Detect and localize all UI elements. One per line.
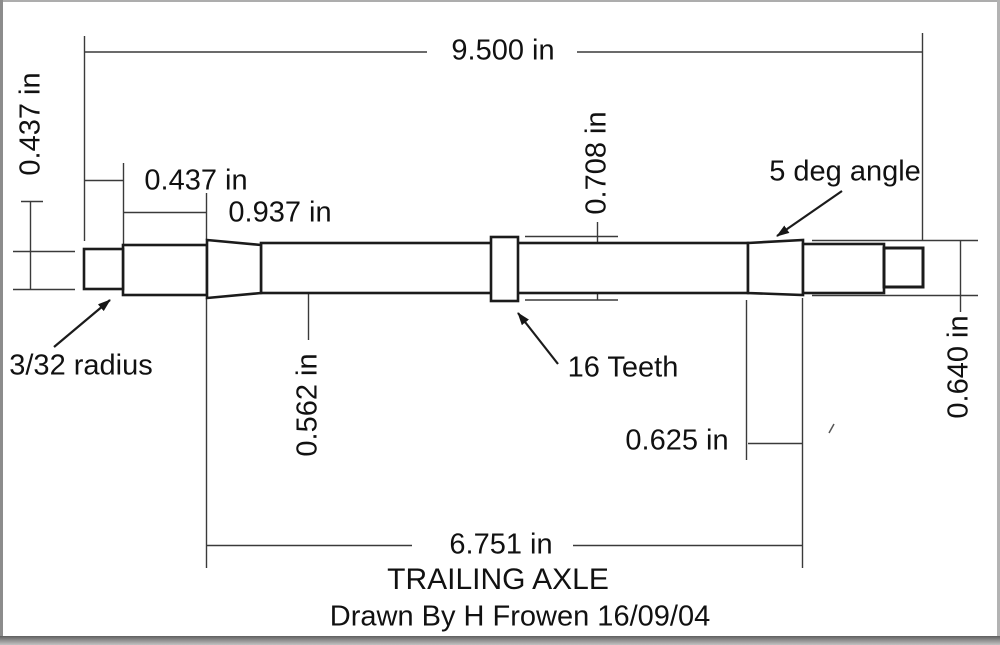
left-journal xyxy=(123,245,207,295)
dim-journal-length-label: 0.937 in xyxy=(228,199,331,228)
radius-note-label: 3/32 radius xyxy=(9,352,153,381)
ext-lines-stub-dia xyxy=(13,252,75,290)
dim-overall-length-label: 9.500 in xyxy=(451,37,554,66)
right-taper-seat xyxy=(748,240,803,295)
gear-blank xyxy=(491,237,518,301)
dim-stub-length-label: 0.437 in xyxy=(144,167,247,196)
dim-gear-diameter-label: 0.708 in xyxy=(583,111,612,214)
frame-edge-top xyxy=(0,0,1000,2)
dim-stub-diameter-label: 0.437 in xyxy=(17,72,46,175)
drawing-credit: Drawn By H Frowen 16/09/04 xyxy=(330,603,710,632)
angle-arrow xyxy=(777,191,842,236)
frame-edge-left xyxy=(0,0,3,645)
axle-drawing-sheet: 9.500 in 0.437 in 0.937 in 0.625 in 6.75… xyxy=(0,0,1000,645)
dim-shaft-diameter-label: 0.562 in xyxy=(294,353,323,456)
dim-taper-diameter-label: 0.640 in xyxy=(945,315,974,418)
right-journal xyxy=(803,244,884,293)
left-taper-seat xyxy=(207,240,261,298)
scan-speck xyxy=(829,424,834,433)
left-end-stub xyxy=(84,249,123,289)
teeth-note-label: 16 Teeth xyxy=(568,354,679,383)
axle-body xyxy=(84,237,923,301)
drawing-title: TRAILING AXLE xyxy=(387,565,609,595)
right-end-stub xyxy=(884,248,923,287)
teeth-arrow xyxy=(518,313,558,364)
angle-note-label: 5 deg angle xyxy=(769,158,921,187)
frame-edge-bottom xyxy=(0,636,1000,645)
radius-arrow xyxy=(54,300,110,347)
dim-taper-length-label: 0.625 in xyxy=(625,427,728,456)
dim-between-tapers-label: 6.751 in xyxy=(449,531,552,560)
